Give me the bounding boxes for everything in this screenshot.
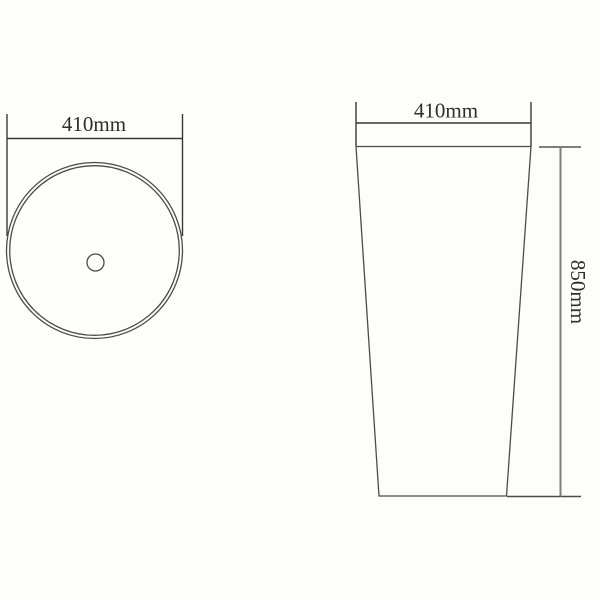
front-view-height-label: 850mm	[566, 260, 590, 324]
basin-drain-hole-circle	[87, 254, 104, 271]
front-view-width-label: 410mm	[414, 99, 478, 123]
basin-inner-rim-circle	[10, 166, 180, 336]
basin-outer-rim-circle	[7, 163, 183, 339]
top-view-diameter-label: 410mm	[62, 112, 126, 136]
top-view: 410mm	[7, 112, 183, 339]
basin-dimension-drawing: 410mm 410mm 850mm	[0, 0, 600, 600]
pedestal-body-outline	[356, 147, 531, 497]
technical-drawing-canvas: 410mm 410mm 850mm	[0, 0, 600, 600]
front-view: 410mm 850mm	[356, 99, 590, 497]
